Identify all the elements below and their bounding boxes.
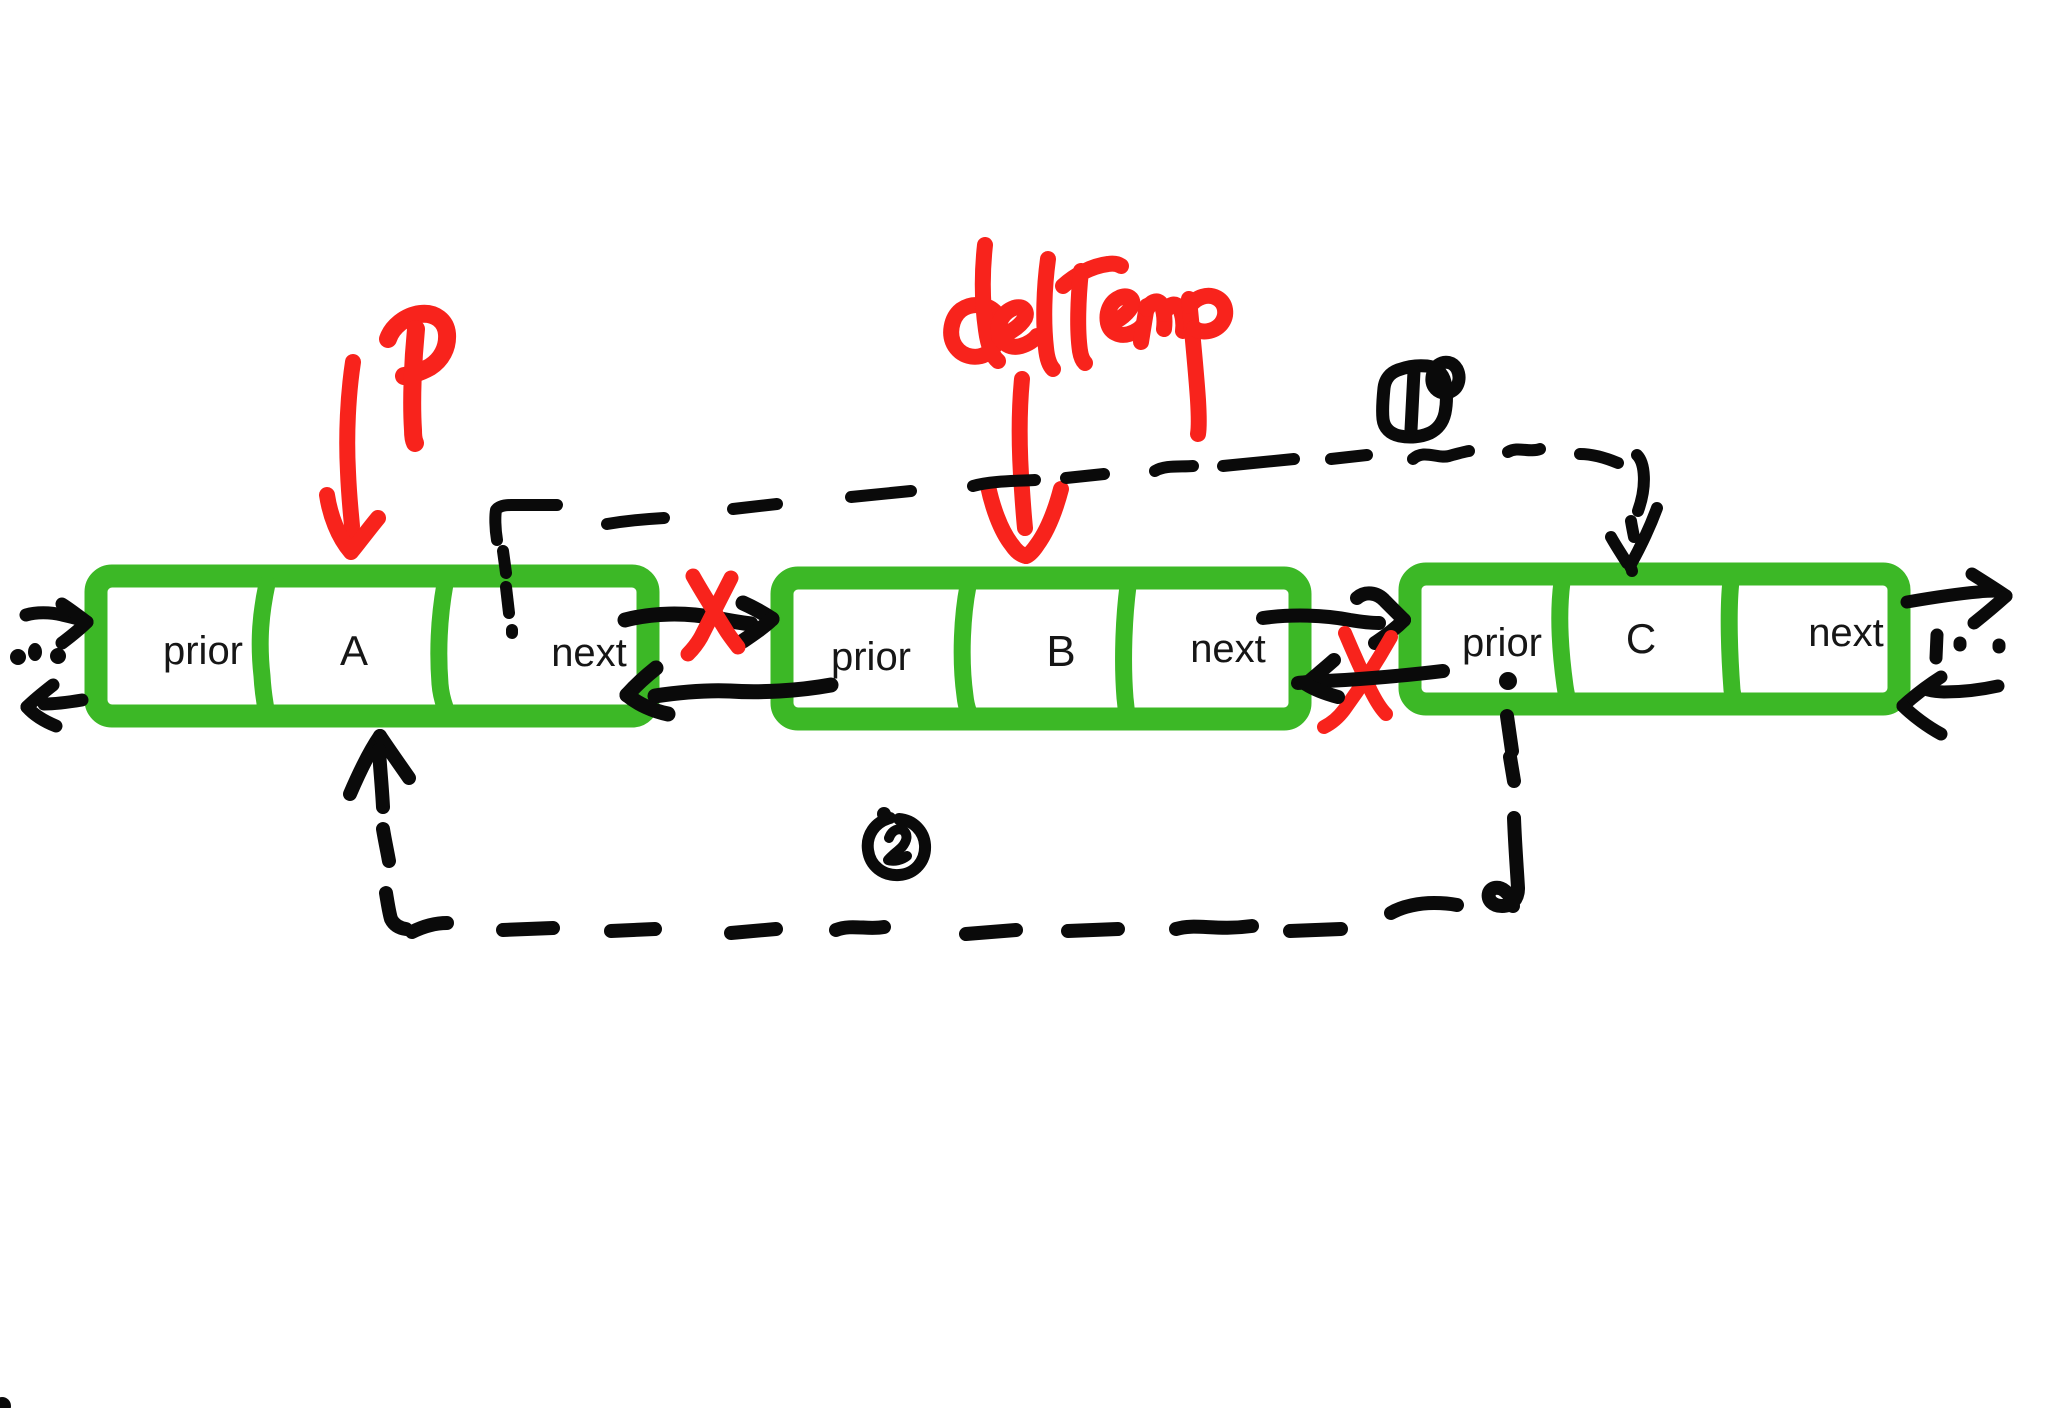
svg-text:next: next — [1808, 611, 1884, 655]
svg-text:C: C — [1626, 615, 1656, 662]
svg-text:prior: prior — [831, 635, 911, 679]
svg-text:prior: prior — [1462, 621, 1542, 665]
svg-text:B: B — [1046, 627, 1075, 676]
svg-text:A: A — [340, 627, 368, 674]
svg-text:next: next — [551, 631, 627, 675]
svg-text:next: next — [1190, 627, 1266, 671]
svg-text:prior: prior — [163, 629, 243, 673]
